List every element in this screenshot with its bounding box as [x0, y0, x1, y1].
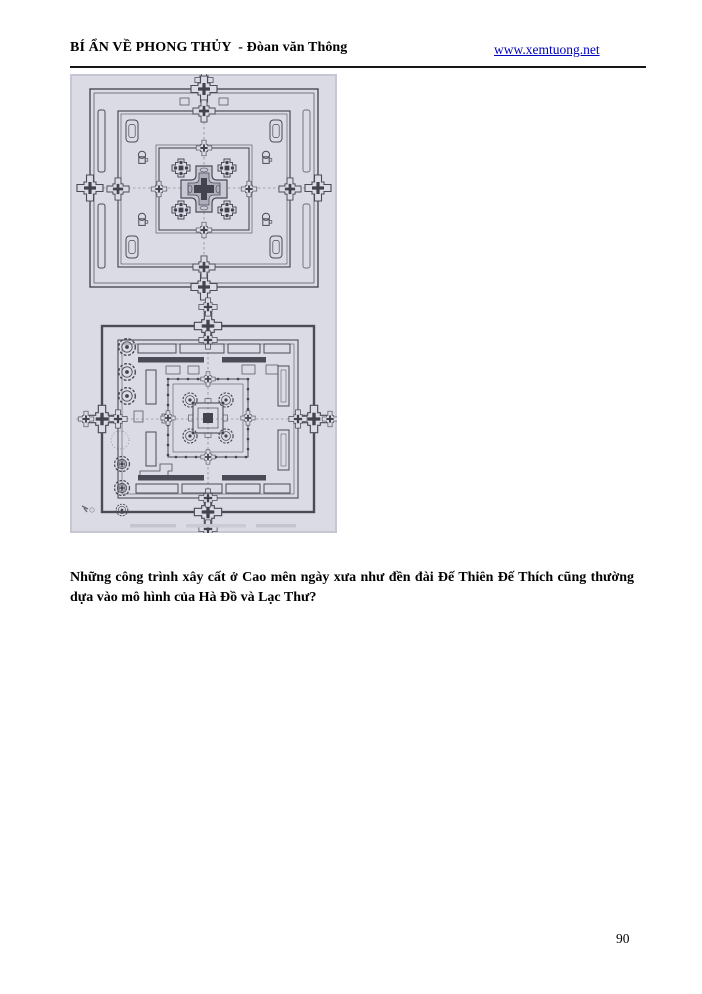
document-page: BÍ ẨN VỀ PHONG THỦY - Đòan văn Thông www…	[0, 0, 702, 994]
figure-caption: Những công trình xây cất ở Cao mên ngày …	[70, 568, 634, 607]
temple-floor-plans-scan-image	[70, 74, 337, 533]
temple-plans-figure	[70, 74, 337, 533]
website-link[interactable]: www.xemtuong.net	[494, 42, 600, 58]
header-rule	[70, 66, 646, 68]
book-title: BÍ ẨN VỀ PHONG THỦY - Đòan văn Thông	[70, 40, 347, 56]
page-number: 90	[616, 931, 630, 947]
